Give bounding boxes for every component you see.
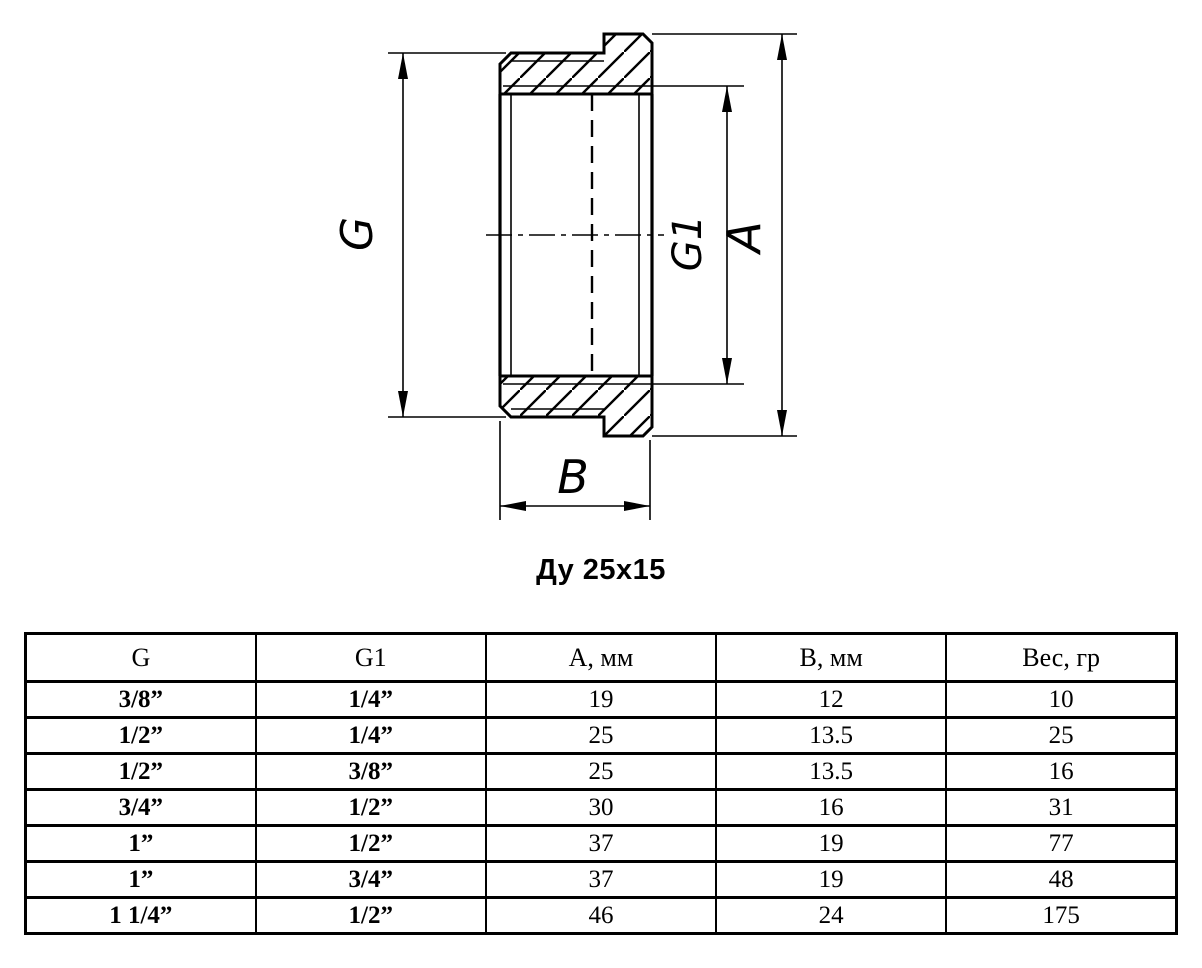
section-top-band (500, 34, 652, 94)
cell-a: 25 (486, 718, 716, 754)
cell-g: 3/4” (26, 790, 256, 826)
cell-b: 19 (716, 862, 946, 898)
cell-b: 16 (716, 790, 946, 826)
dimension-table: G G1 A, мм B, мм Вес, гр 3/8” 1/4” 19 12… (24, 632, 1178, 935)
cell-wt: 175 (946, 898, 1176, 934)
table-row: 1/2” 3/8” 25 13.5 16 (26, 754, 1177, 790)
cell-g: 1” (26, 826, 256, 862)
cell-a: 25 (486, 754, 716, 790)
cell-wt: 16 (946, 754, 1176, 790)
cell-a: 37 (486, 826, 716, 862)
cell-g1: 1/4” (256, 682, 486, 718)
section-bottom-band (500, 376, 652, 436)
cell-wt: 48 (946, 862, 1176, 898)
dim-label-a: A (717, 221, 771, 255)
cell-g1: 1/2” (256, 826, 486, 862)
technical-drawing: G G1 A B (0, 0, 1202, 600)
table-row: 1/2” 1/4” 25 13.5 25 (26, 718, 1177, 754)
cell-wt: 25 (946, 718, 1176, 754)
column-header-wt: Вес, гр (946, 634, 1176, 682)
cell-a: 37 (486, 862, 716, 898)
cell-g: 1” (26, 862, 256, 898)
column-header-a: A, мм (486, 634, 716, 682)
dimension-g: G (332, 53, 506, 417)
table-row: 1” 3/4” 37 19 48 (26, 862, 1177, 898)
cell-g1: 3/4” (256, 862, 486, 898)
cell-wt: 10 (946, 682, 1176, 718)
cell-g: 1 1/4” (26, 898, 256, 934)
dim-label-g: G (332, 217, 383, 251)
table-row: 3/4” 1/2” 30 16 31 (26, 790, 1177, 826)
cell-b: 24 (716, 898, 946, 934)
cell-a: 46 (486, 898, 716, 934)
column-header-b: B, мм (716, 634, 946, 682)
table-row: 3/8” 1/4” 19 12 10 (26, 682, 1177, 718)
cell-a: 30 (486, 790, 716, 826)
dim-label-b: B (557, 450, 589, 504)
table-row: 1 1/4” 1/2” 46 24 175 (26, 898, 1177, 934)
table-header-row: G G1 A, мм B, мм Вес, гр (26, 634, 1177, 682)
cell-g: 3/8” (26, 682, 256, 718)
cell-g1: 1/2” (256, 898, 486, 934)
datasheet-page: G G1 A B Ду 25x15 (0, 0, 1202, 968)
drawing-title: Ду 25x15 (0, 554, 1202, 587)
cell-b: 13.5 (716, 718, 946, 754)
cell-g: 1/2” (26, 718, 256, 754)
column-header-g1: G1 (256, 634, 486, 682)
cell-a: 19 (486, 682, 716, 718)
cell-g1: 3/8” (256, 754, 486, 790)
cell-b: 13.5 (716, 754, 946, 790)
dim-label-g1: G1 (665, 215, 711, 271)
cell-g: 1/2” (26, 754, 256, 790)
cell-g1: 1/2” (256, 790, 486, 826)
column-header-g: G (26, 634, 256, 682)
cell-b: 19 (716, 826, 946, 862)
cell-wt: 77 (946, 826, 1176, 862)
cell-b: 12 (716, 682, 946, 718)
table-row: 1” 1/2” 37 19 77 (26, 826, 1177, 862)
cell-g1: 1/4” (256, 718, 486, 754)
cell-wt: 31 (946, 790, 1176, 826)
